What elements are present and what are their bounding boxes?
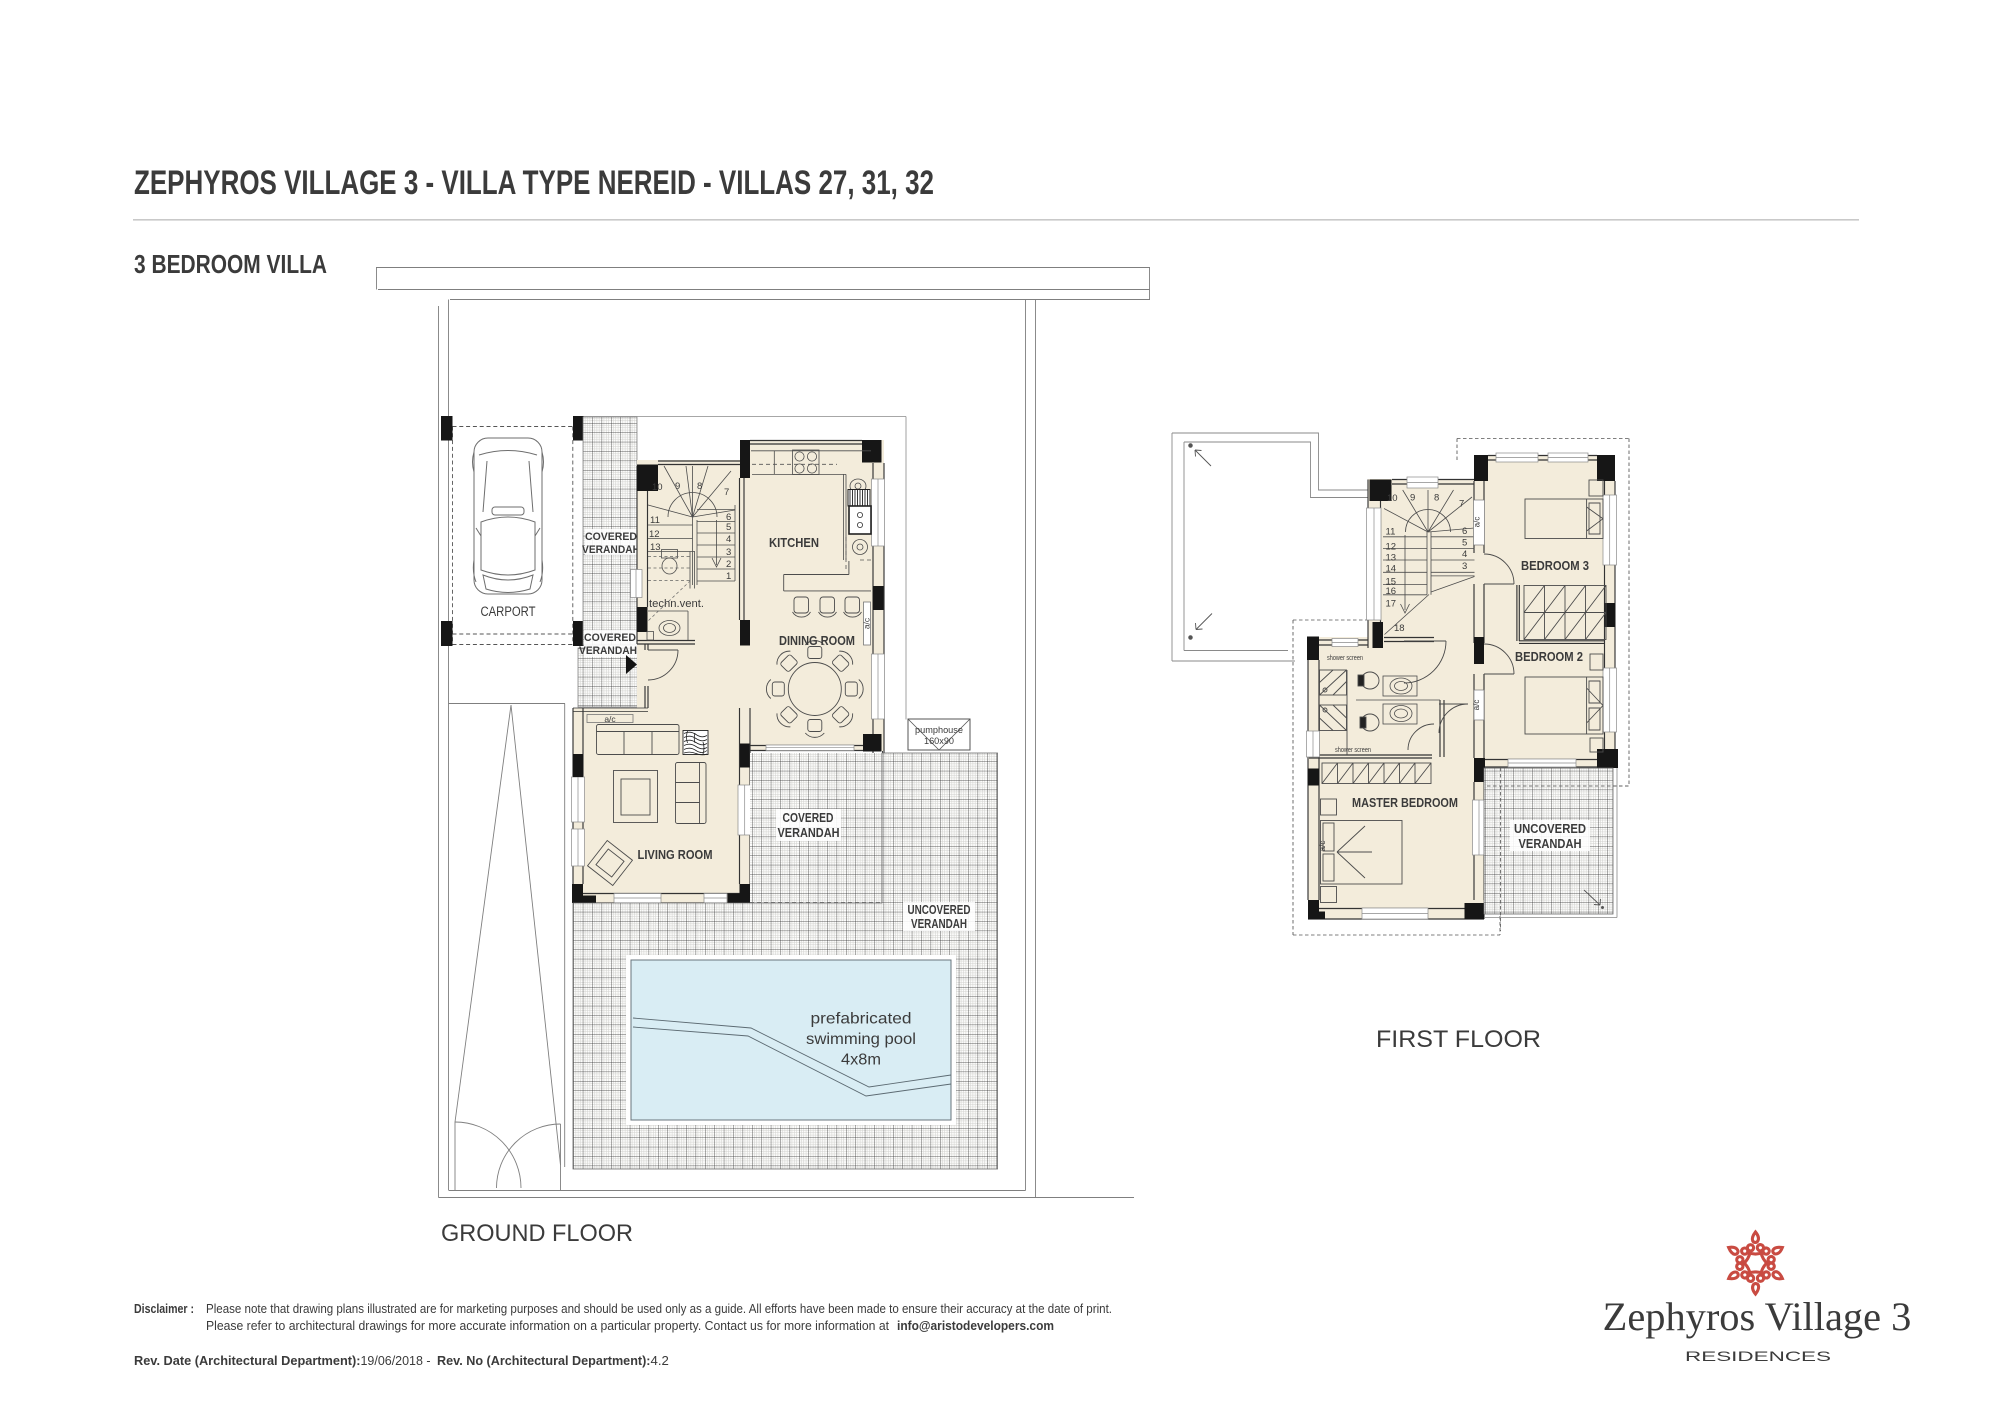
- svg-text:7: 7: [1459, 499, 1464, 510]
- svg-text:2: 2: [726, 559, 731, 570]
- svg-text:4x8m: 4x8m: [841, 1052, 881, 1069]
- svg-text:shower screen: shower screen: [1335, 747, 1371, 754]
- svg-text:4.2: 4.2: [651, 1353, 669, 1368]
- svg-text:10: 10: [1387, 493, 1398, 504]
- svg-text:GROUND FLOOR: GROUND FLOOR: [441, 1220, 633, 1247]
- svg-text:a/c: a/c: [862, 617, 872, 629]
- svg-text:techn.vent.: techn.vent.: [649, 598, 704, 610]
- svg-text:7: 7: [724, 487, 729, 498]
- svg-text:VERANDAH: VERANDAH: [582, 544, 640, 556]
- svg-text:UNCOVERED: UNCOVERED: [908, 903, 971, 917]
- svg-text:8: 8: [697, 481, 702, 492]
- svg-text:BEDROOM 3: BEDROOM 3: [1521, 559, 1589, 573]
- svg-text:Zephyros Village 3: Zephyros Village 3: [1603, 1294, 1912, 1339]
- svg-text:13: 13: [1386, 553, 1397, 564]
- svg-text:shower screen: shower screen: [1327, 655, 1363, 662]
- svg-text:19/06/2018 -: 19/06/2018 -: [361, 1353, 431, 1368]
- svg-text:a/c: a/c: [1318, 841, 1327, 852]
- svg-text:swimming pool: swimming pool: [806, 1031, 916, 1048]
- svg-text:RESIDENCES: RESIDENCES: [1685, 1348, 1831, 1364]
- svg-text:Rev. No (Architectural Departm: Rev. No (Architectural Department):: [437, 1353, 651, 1368]
- svg-text:9: 9: [1410, 493, 1415, 504]
- svg-text:14: 14: [1386, 564, 1397, 575]
- svg-text:4: 4: [1462, 549, 1467, 560]
- svg-text:5: 5: [1462, 538, 1467, 549]
- svg-text:prefabricated: prefabricated: [811, 1011, 912, 1028]
- svg-text:ZEPHYROS VILLAGE 3 - VILLA TYP: ZEPHYROS VILLAGE 3 - VILLA TYPE NEREID -…: [134, 164, 934, 202]
- svg-text:16: 16: [1386, 586, 1397, 597]
- svg-text:Please note that drawing plans: Please note that drawing plans illustrat…: [206, 1301, 1112, 1316]
- svg-text:5: 5: [726, 522, 731, 533]
- svg-text:18: 18: [1394, 623, 1405, 634]
- svg-text:info@aristodevelopers.com: info@aristodevelopers.com: [897, 1318, 1054, 1333]
- svg-text:Please refer to architectural: Please refer to architectural drawings f…: [206, 1318, 889, 1333]
- svg-text:12: 12: [1386, 542, 1397, 553]
- svg-text:3: 3: [1462, 561, 1467, 572]
- svg-text:Disclaimer :: Disclaimer :: [134, 1301, 194, 1316]
- svg-text:12: 12: [649, 529, 660, 540]
- svg-text:10: 10: [652, 482, 663, 493]
- svg-text:1: 1: [726, 571, 731, 582]
- svg-text:CARPORT: CARPORT: [481, 604, 536, 619]
- svg-text:VERANDAH: VERANDAH: [579, 645, 637, 657]
- svg-text:8: 8: [1434, 493, 1439, 504]
- svg-text:COVERED: COVERED: [585, 531, 637, 543]
- svg-text:9: 9: [675, 481, 680, 492]
- svg-text:VERANDAH: VERANDAH: [778, 826, 840, 840]
- svg-text:11: 11: [1386, 527, 1396, 538]
- svg-text:13: 13: [650, 542, 661, 553]
- svg-text:3 BEDROOM VILLA: 3 BEDROOM VILLA: [134, 249, 327, 279]
- svg-text:17: 17: [1386, 599, 1397, 610]
- svg-text:DINING ROOM: DINING ROOM: [779, 633, 855, 648]
- svg-text:VERANDAH: VERANDAH: [1519, 836, 1582, 851]
- svg-text:6: 6: [1462, 526, 1467, 537]
- svg-text:a/c: a/c: [1473, 517, 1482, 528]
- svg-text:UNCOVERED: UNCOVERED: [1514, 821, 1586, 836]
- svg-text:MASTER BEDROOM: MASTER BEDROOM: [1352, 795, 1458, 810]
- svg-text:4: 4: [726, 534, 731, 545]
- svg-text:a/c: a/c: [604, 714, 616, 724]
- svg-text:KITCHEN: KITCHEN: [769, 535, 819, 550]
- svg-text:pumphouse: pumphouse: [915, 725, 963, 736]
- svg-text:COVERED: COVERED: [783, 811, 834, 825]
- svg-text:BEDROOM 2: BEDROOM 2: [1515, 650, 1583, 664]
- svg-text:a/c: a/c: [1472, 700, 1481, 711]
- svg-text:160x90: 160x90: [924, 736, 954, 747]
- svg-text:3: 3: [726, 547, 731, 558]
- svg-text:FIRST FLOOR: FIRST FLOOR: [1376, 1026, 1541, 1053]
- svg-text:11: 11: [650, 515, 660, 526]
- svg-text:VERANDAH: VERANDAH: [911, 917, 967, 931]
- svg-text:Rev. Date (Architectural Depar: Rev. Date (Architectural Department):: [134, 1353, 361, 1368]
- svg-text:LIVING ROOM: LIVING ROOM: [638, 847, 713, 862]
- svg-text:COVERED: COVERED: [584, 632, 636, 644]
